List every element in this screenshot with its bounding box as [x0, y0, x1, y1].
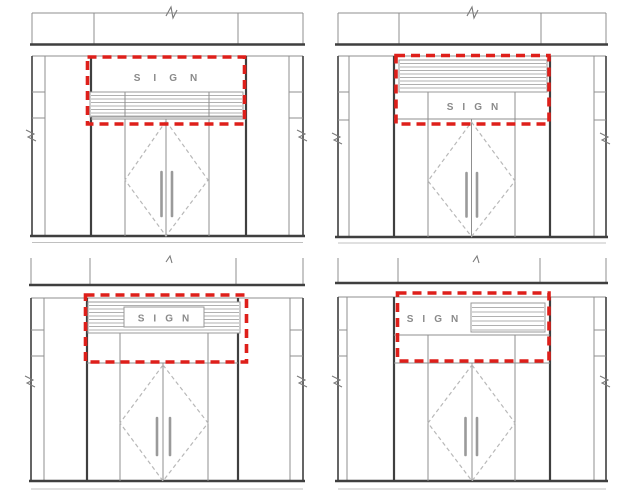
door-diamond	[120, 365, 208, 481]
fascia-band	[335, 256, 608, 297]
break-mark-icon	[297, 376, 307, 387]
storefront-door	[91, 119, 246, 236]
sign-band: SIGN	[90, 73, 243, 117]
fascia-band	[29, 256, 305, 298]
storefront-door	[394, 119, 550, 237]
break-mark-icon	[473, 256, 479, 263]
break-mark-icon	[166, 7, 177, 18]
sign-band: SIGN	[399, 60, 547, 119]
fascia-band	[335, 7, 608, 56]
break-mark-icon	[25, 376, 35, 387]
elevation-panel-bottom-left: SIGN	[0, 250, 320, 494]
storefront-door	[87, 333, 238, 481]
break-mark-icon	[467, 7, 478, 18]
elevation-panel-bottom-right: SIGN	[320, 250, 640, 494]
break-mark-icon	[600, 133, 610, 144]
sign-text: SIGN	[407, 314, 467, 325]
fascia-band	[30, 7, 305, 56]
storefront-door	[394, 335, 550, 481]
break-mark-icon	[26, 130, 36, 141]
break-mark-icon	[332, 133, 342, 144]
sign-text: SIGN	[134, 73, 210, 84]
hatch-block	[399, 60, 547, 92]
break-mark-icon	[600, 376, 610, 387]
elevation-panel-top-right: SIGN	[320, 0, 640, 250]
sign-band: SIGN	[394, 303, 550, 335]
break-mark-icon	[332, 376, 342, 387]
break-mark-icon	[166, 256, 172, 263]
sign-band: SIGN	[88, 302, 240, 333]
break-mark-icon	[297, 130, 307, 141]
sign-text: SIGN	[138, 314, 198, 325]
elevation-panel-top-left: SIGN	[0, 0, 320, 250]
drawing-canvas: SIGN	[0, 0, 640, 494]
sign-text: SIGN	[447, 102, 507, 113]
